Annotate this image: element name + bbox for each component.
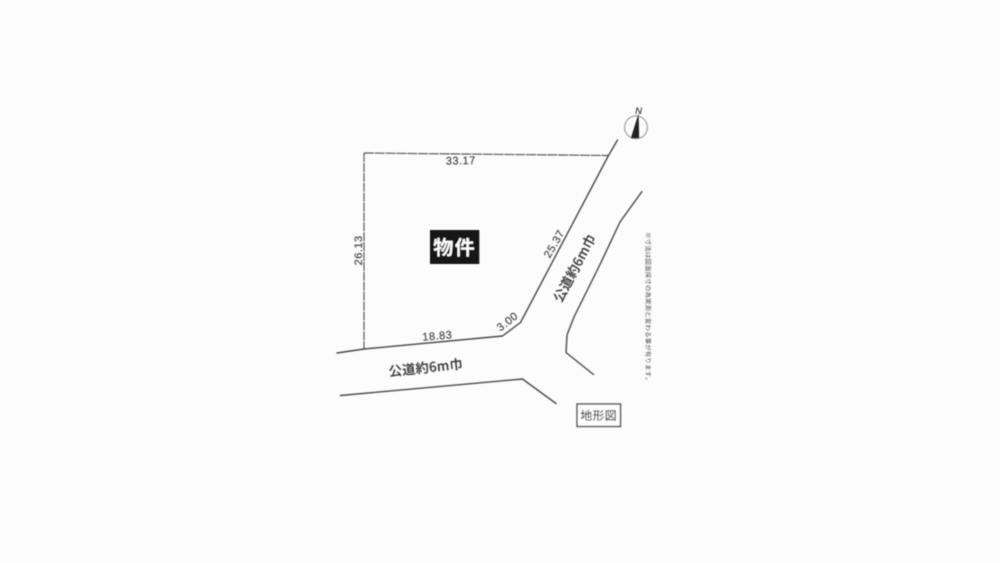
svg-text:N: N	[635, 106, 642, 117]
svg-text:33.17: 33.17	[446, 155, 476, 168]
svg-text:26.13: 26.13	[353, 235, 365, 265]
